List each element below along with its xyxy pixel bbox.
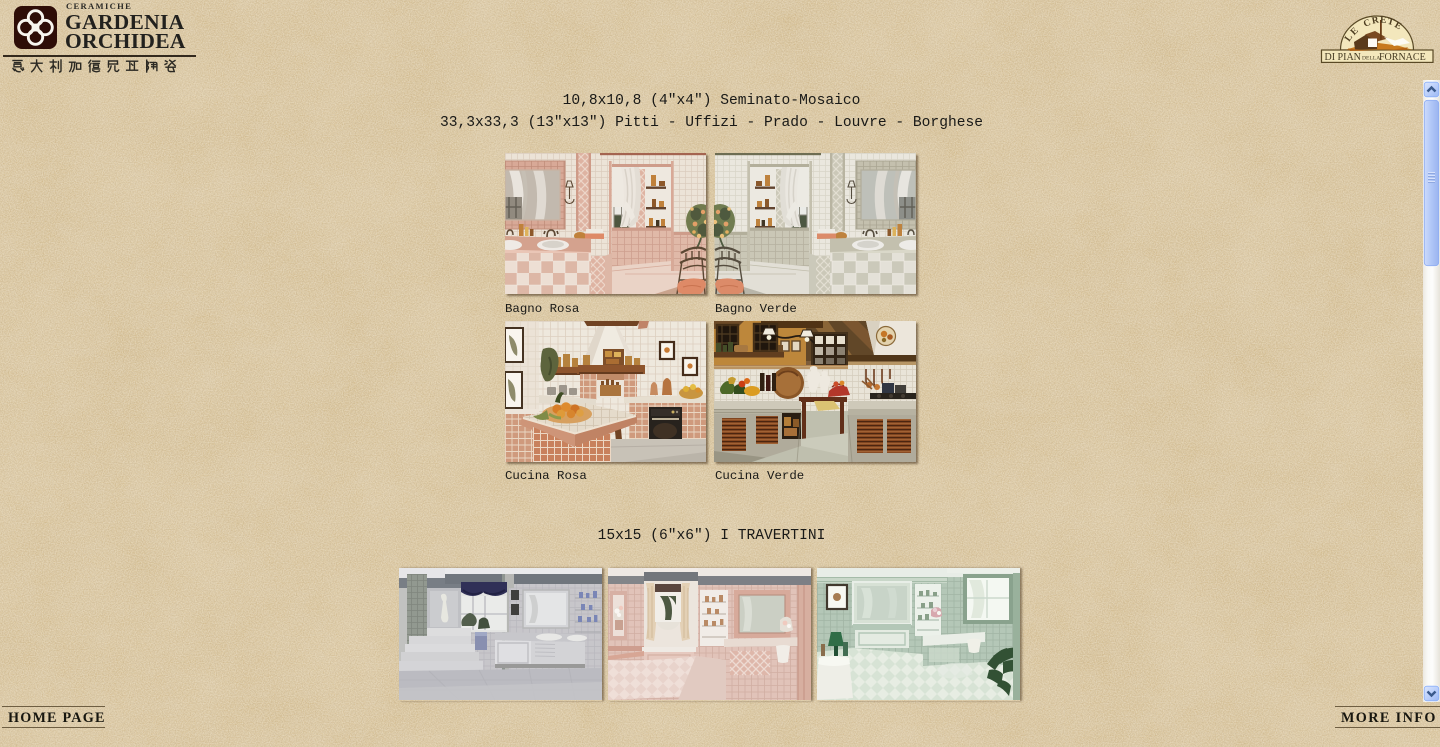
svg-text:DI PIAN: DI PIAN (1325, 52, 1361, 63)
svg-text:E: E (1380, 16, 1387, 26)
svg-text:FORNACE: FORNACE (1379, 52, 1426, 63)
svg-text:DELLA: DELLA (1362, 55, 1380, 61)
